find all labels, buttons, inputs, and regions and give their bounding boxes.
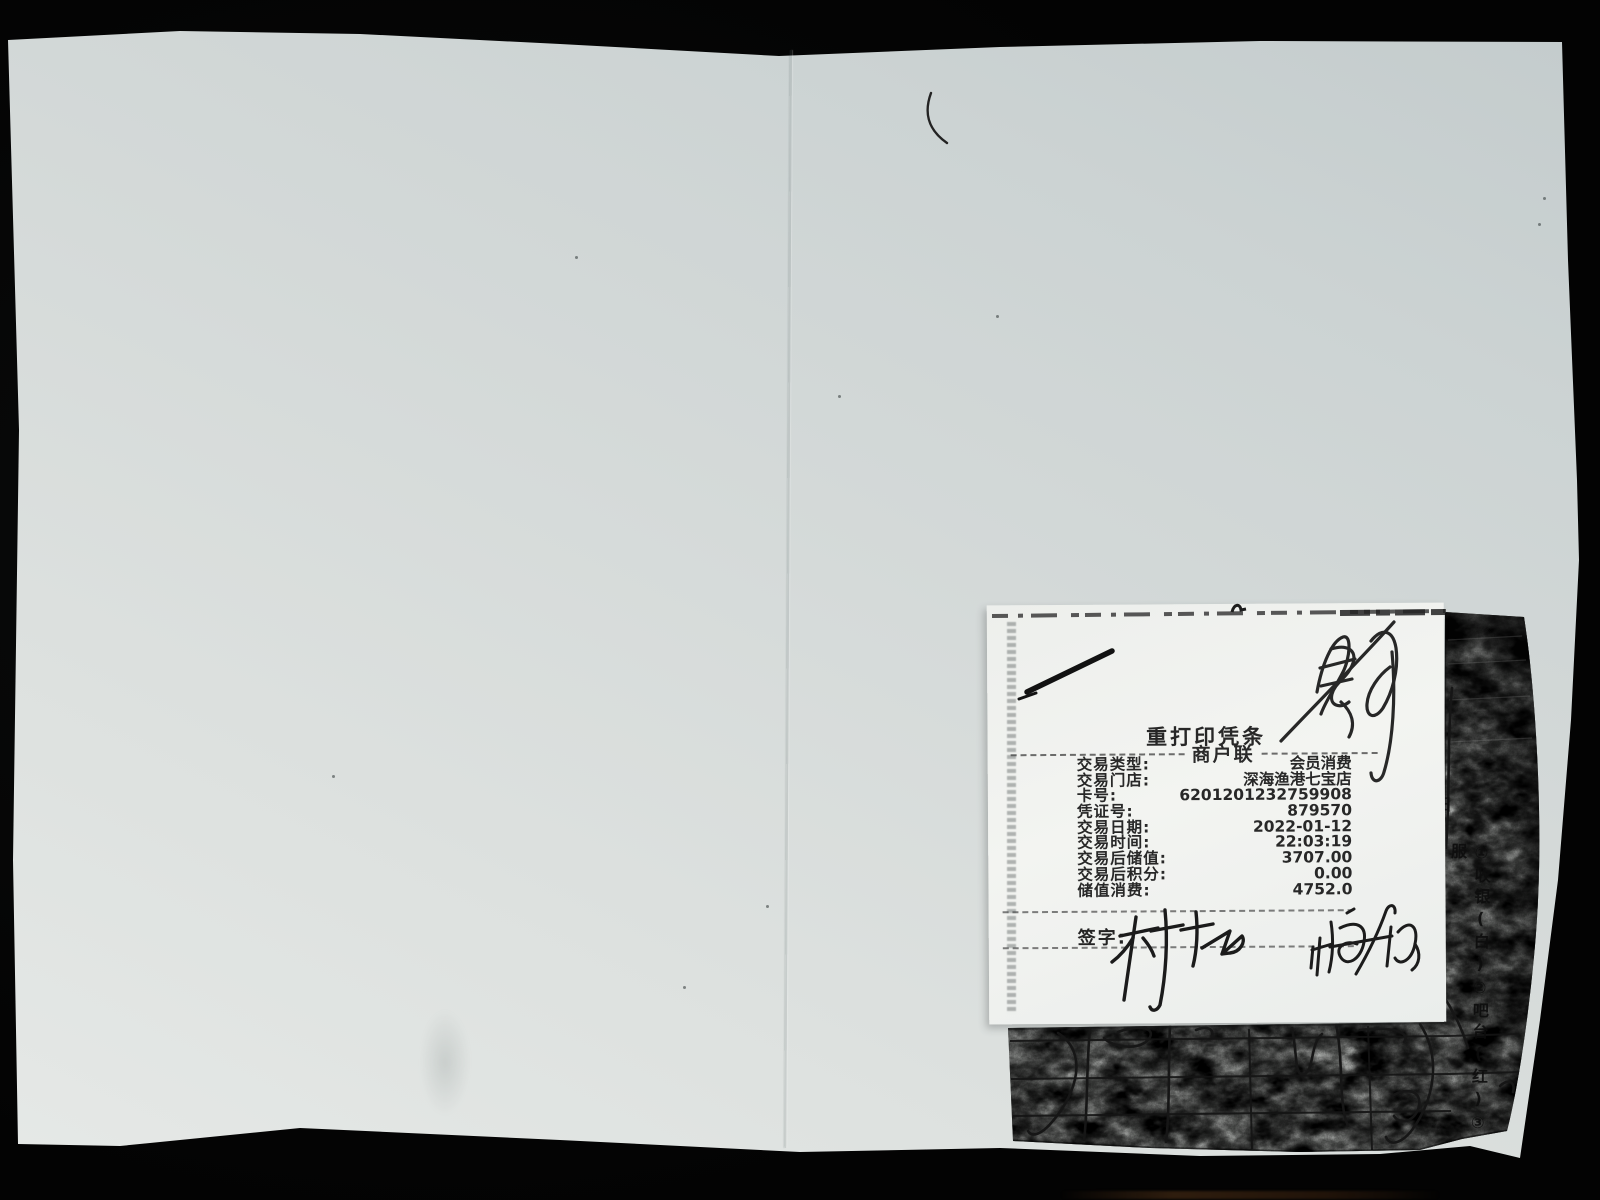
signature-scribble-right: [1311, 906, 1419, 975]
pen-slash-mark: [1019, 651, 1112, 699]
receipt-torn-edge: [992, 605, 1448, 616]
handwriting-overlay: [0, 0, 1600, 1200]
signature-scribble-left: [1112, 910, 1243, 1010]
pen-arc-mark: [928, 93, 947, 143]
table-surface-sliver: [1060, 1191, 1440, 1199]
signature-scribble-top: [1281, 622, 1397, 781]
scanned-photo: 日 ①收银(白)②吧台(红)③服 重打印凭条 商户联 交易类型:会员消费 交易门…: [0, 0, 1600, 1200]
